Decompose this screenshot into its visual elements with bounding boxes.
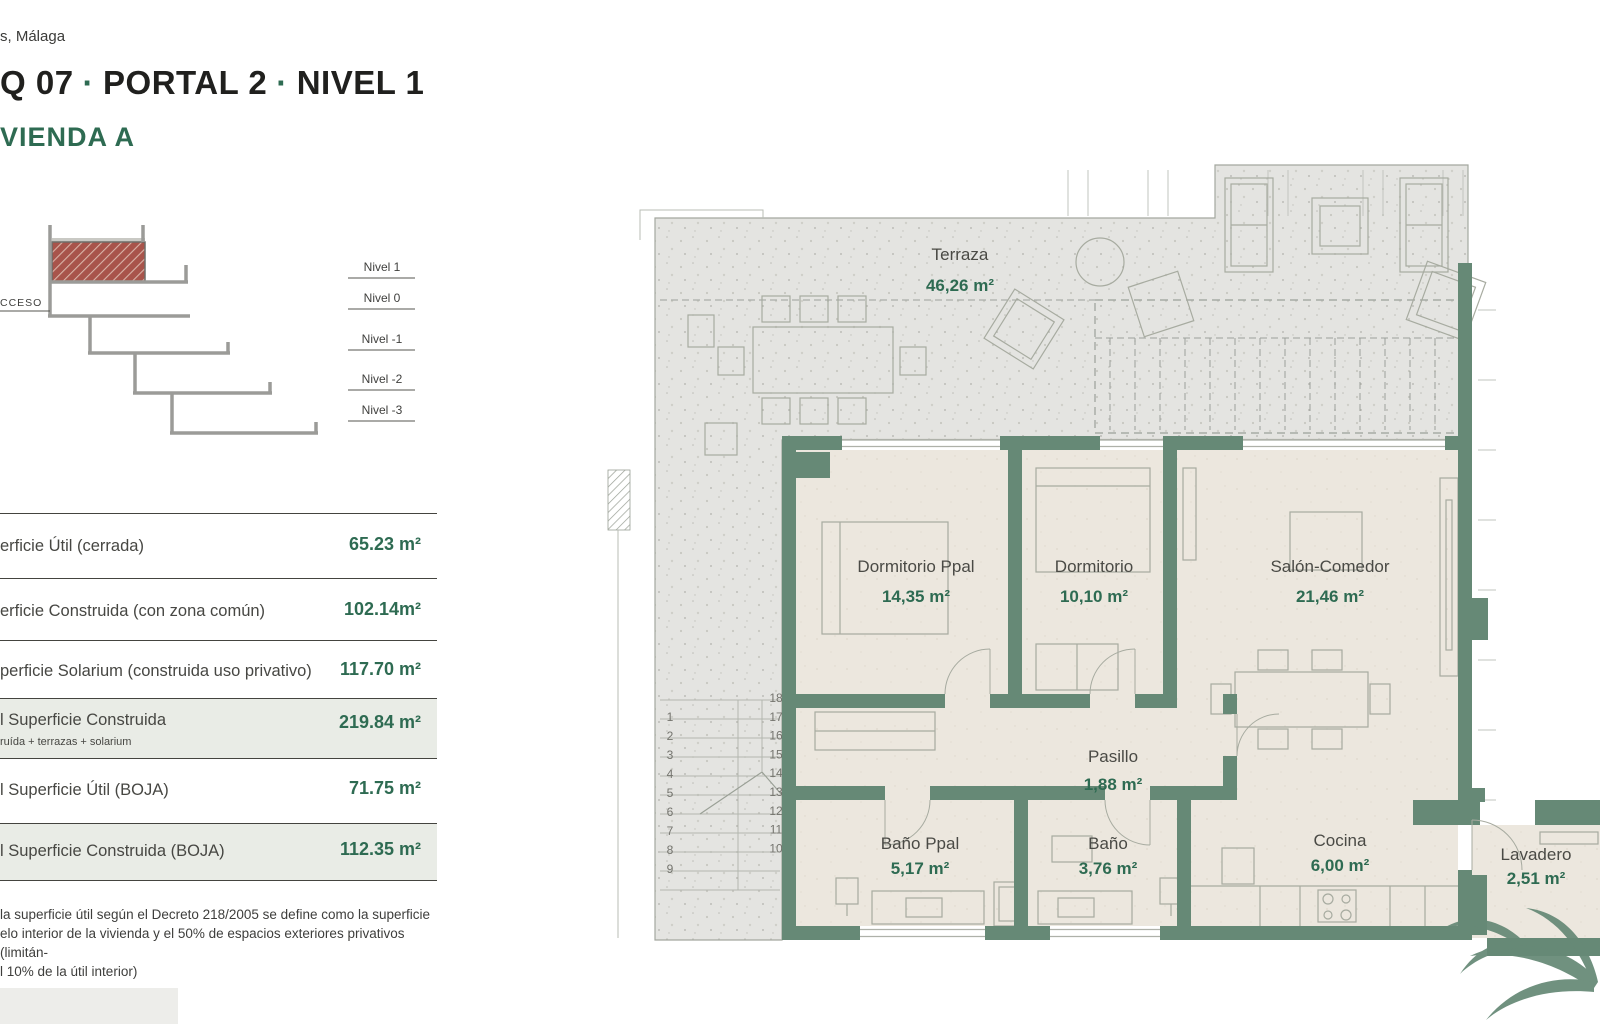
floor-plan: 123456789181716151413121110 <box>600 0 1600 1024</box>
level-label: Nivel 0 <box>364 291 401 305</box>
location-label: s, Málaga <box>0 28 65 45</box>
svg-text:7: 7 <box>667 824 674 838</box>
footnote-line: l 10% de la útil interior) <box>0 962 430 981</box>
surface-row-value: 112.35 m² <box>0 839 437 860</box>
surface-row-value: 117.70 m² <box>0 659 437 680</box>
room-area: 1,88 m² <box>1084 775 1143 794</box>
room-area: 10,10 m² <box>1060 587 1128 606</box>
page-title: Q 07·PORTAL 2·NIVEL 1 <box>0 64 424 102</box>
left-hatch-strip <box>608 470 630 530</box>
title-dot: · <box>267 64 297 101</box>
room-label: Dormitorio Ppal <box>857 557 974 576</box>
room-label: Pasillo <box>1088 747 1138 766</box>
info-panel: s, Málaga Q 07·PORTAL 2·NIVEL 1 VIENDA A… <box>0 0 440 1024</box>
level-labels: Nivel 1 Nivel 0 Nivel -1 Nivel -2 Nivel … <box>348 260 415 421</box>
svg-text:17: 17 <box>769 710 783 724</box>
table-divider <box>0 880 437 881</box>
room-label: Baño <box>1088 834 1128 853</box>
title-level: NIVEL 1 <box>297 64 425 101</box>
level-label: Nivel -1 <box>362 332 403 346</box>
legal-footnote: la superficie útil según el Decreto 218/… <box>0 905 430 981</box>
title-block: Q 07 <box>0 64 74 101</box>
table-divider <box>0 513 437 514</box>
svg-text:14: 14 <box>769 766 783 780</box>
table-divider <box>0 823 437 824</box>
room-area: 6,00 m² <box>1311 856 1370 875</box>
footnote-line: la superficie útil según el Decreto 218/… <box>0 905 430 924</box>
svg-text:4: 4 <box>667 767 674 781</box>
svg-text:16: 16 <box>769 729 783 743</box>
building-section-diagram: CCESO Nivel 1 Nivel 0 Nivel -1 Nivel -2 … <box>0 195 440 445</box>
surface-row-value: 219.84 m² <box>0 712 437 733</box>
room-area: 2,51 m² <box>1507 869 1566 888</box>
room-area: 21,46 m² <box>1296 587 1364 606</box>
title-dot: · <box>74 64 104 101</box>
level-label: Nivel -3 <box>362 403 403 417</box>
svg-text:12: 12 <box>769 804 783 818</box>
room-area: 46,26 m² <box>926 276 994 295</box>
svg-text:6: 6 <box>667 805 674 819</box>
room-area: 14,35 m² <box>882 587 950 606</box>
svg-text:11: 11 <box>770 823 783 837</box>
table-divider <box>0 758 437 759</box>
svg-text:3: 3 <box>667 748 674 762</box>
dwelling-name: VIENDA A <box>0 122 135 153</box>
svg-text:13: 13 <box>769 785 783 799</box>
surface-row-sublabel: ruída + terrazas + solarium <box>0 736 131 748</box>
svg-text:2: 2 <box>667 729 674 743</box>
table-divider <box>0 578 437 579</box>
svg-text:8: 8 <box>667 843 674 857</box>
room-area: 3,76 m² <box>1079 859 1138 878</box>
brochure-page: { "location": "s, Málaga", "title": {"pa… <box>0 0 1600 1024</box>
highlighted-unit-hatch <box>52 242 145 282</box>
decorative-gray-box <box>0 988 178 1024</box>
surface-row-value: 65.23 m² <box>0 534 437 555</box>
room-label: Lavadero <box>1501 845 1572 864</box>
room-label: Terraza <box>932 245 989 264</box>
room-label: Dormitorio <box>1055 557 1133 576</box>
svg-text:1: 1 <box>667 710 674 724</box>
level-label: Nivel 1 <box>364 260 401 274</box>
svg-text:15: 15 <box>769 747 783 761</box>
room-area: 5,17 m² <box>891 859 950 878</box>
title-portal: PORTAL 2 <box>103 64 267 101</box>
footnote-line: elo interior de la vivienda y el 50% de … <box>0 924 430 962</box>
surface-row-value: 71.75 m² <box>0 778 437 799</box>
level-label: Nivel -2 <box>362 372 403 386</box>
room-label: Salón-Comedor <box>1270 557 1389 576</box>
svg-text:10: 10 <box>769 841 783 855</box>
table-divider <box>0 640 437 641</box>
acceso-label: CCESO <box>0 297 42 309</box>
room-label: Cocina <box>1314 831 1367 850</box>
room-label: Baño Ppal <box>881 834 959 853</box>
table-divider <box>0 698 437 699</box>
svg-text:18: 18 <box>769 691 783 705</box>
surface-row-value: 102.14m² <box>0 599 437 620</box>
svg-text:5: 5 <box>667 786 674 800</box>
svg-text:9: 9 <box>667 862 674 876</box>
